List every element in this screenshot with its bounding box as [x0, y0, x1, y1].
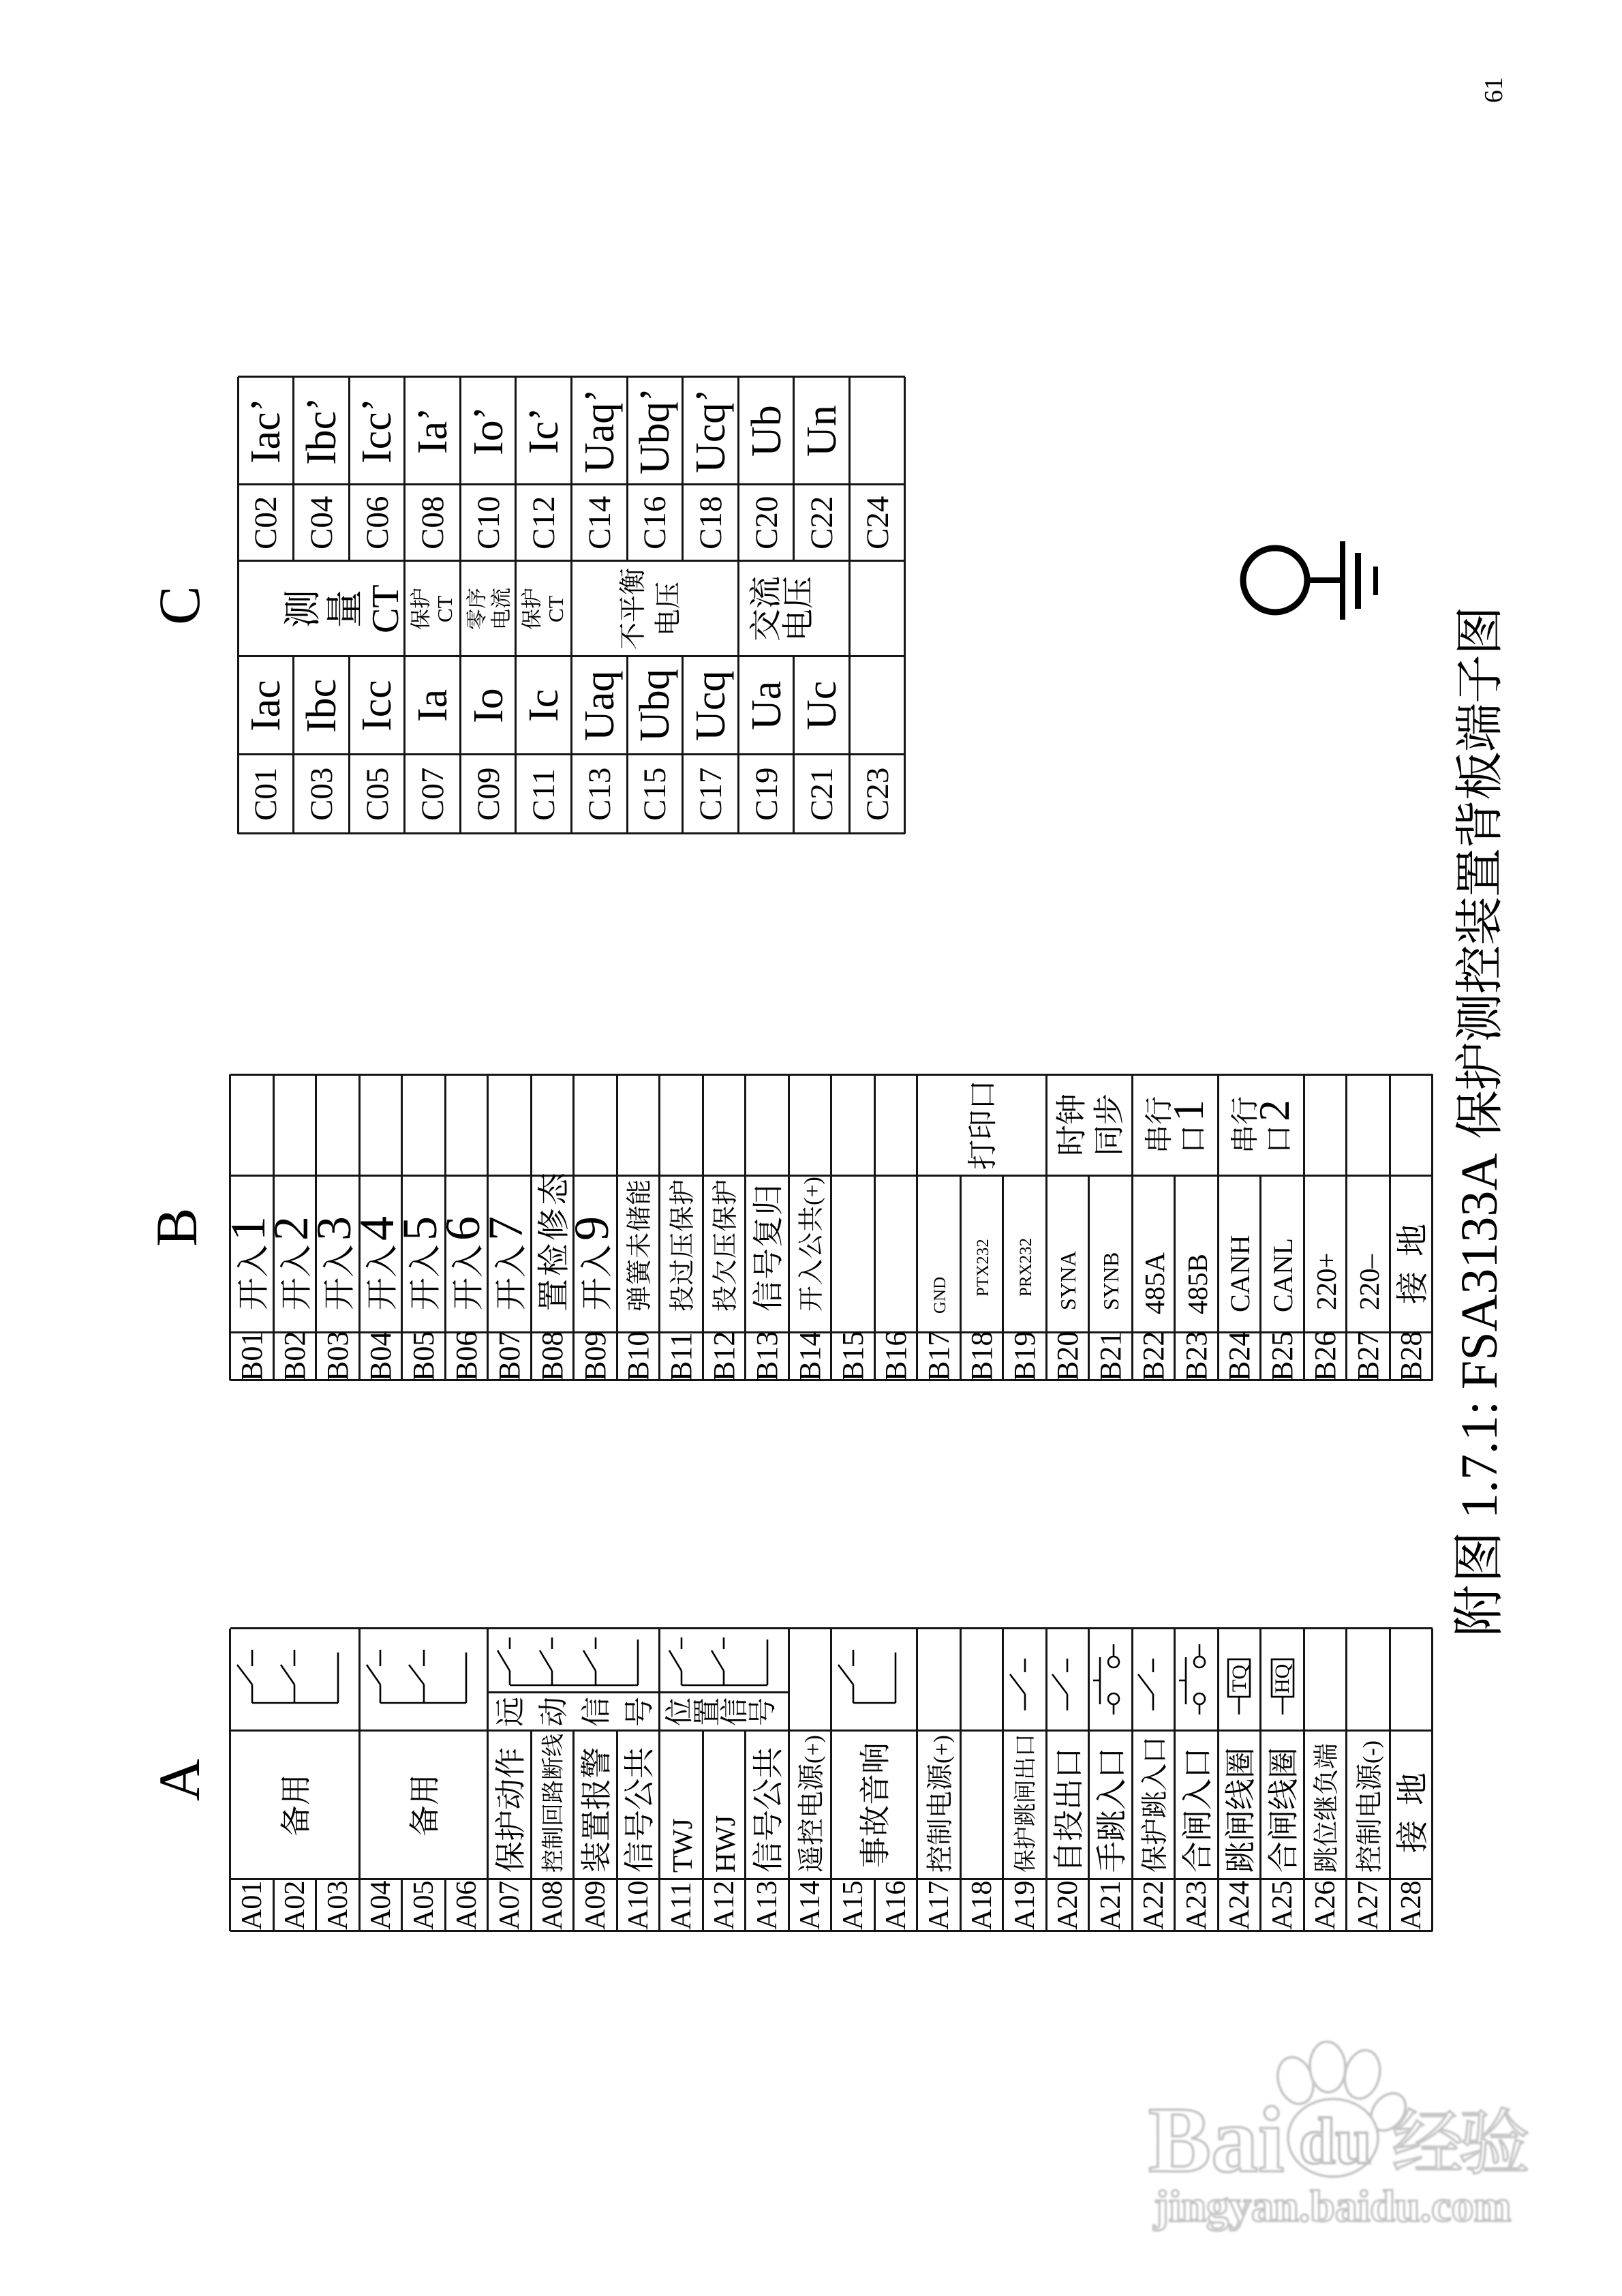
svg-text:61: 61 [1480, 77, 1508, 103]
svg-text:B03: B03 [321, 1331, 354, 1381]
svg-text:A10: A10 [623, 1881, 654, 1930]
svg-text:A28: A28 [1396, 1881, 1427, 1930]
svg-text:A25: A25 [1267, 1881, 1298, 1930]
svg-text:SYNB: SYNB [1099, 1252, 1123, 1310]
svg-text:A02: A02 [279, 1881, 311, 1930]
svg-text:B22: B22 [1137, 1331, 1170, 1381]
svg-text:Ia’: Ia’ [410, 407, 456, 454]
svg-text:C20: C20 [749, 496, 784, 549]
svg-text:Ic’: Ic’ [521, 407, 567, 454]
svg-text:A03: A03 [322, 1881, 354, 1930]
svg-text:Uc: Uc [799, 681, 845, 730]
svg-text:B04: B04 [364, 1331, 397, 1381]
svg-text:(+): (+) [801, 1735, 826, 1764]
svg-text:A16: A16 [881, 1881, 912, 1930]
svg-text:C12: C12 [526, 496, 562, 549]
svg-text:Ic: Ic [521, 689, 567, 722]
svg-text:B02: B02 [278, 1331, 311, 1381]
svg-text:Io: Io [465, 688, 512, 723]
svg-text:(+): (+) [930, 1735, 955, 1764]
svg-text:B17: B17 [922, 1331, 955, 1381]
svg-text:C24: C24 [860, 496, 896, 549]
svg-text:Ucq’: Ucq’ [688, 389, 734, 473]
svg-text:Ucq: Ucq [688, 671, 734, 741]
svg-text:HQ: HQ [1271, 1663, 1294, 1693]
svg-text:A09: A09 [580, 1881, 611, 1930]
svg-text:Un: Un [799, 405, 845, 457]
svg-text:(+): (+) [800, 1177, 825, 1205]
svg-text:B11: B11 [664, 1332, 698, 1381]
svg-text:220+: 220+ [1311, 1252, 1342, 1310]
svg-text:B06: B06 [450, 1331, 483, 1381]
svg-text:C18: C18 [693, 496, 729, 549]
svg-text:C16: C16 [637, 496, 673, 549]
svg-text:C11: C11 [526, 768, 562, 821]
svg-text:A18: A18 [966, 1881, 998, 1930]
svg-text:A17: A17 [923, 1881, 955, 1930]
svg-text:B08: B08 [536, 1331, 569, 1381]
svg-text:Uaq’: Uaq’ [577, 389, 623, 473]
svg-text:B26: B26 [1309, 1331, 1342, 1381]
svg-text:A12: A12 [709, 1881, 740, 1930]
svg-text:CT: CT [544, 595, 568, 622]
svg-text:B28: B28 [1394, 1331, 1428, 1381]
svg-text:A21: A21 [1095, 1881, 1127, 1930]
svg-text:du: du [1299, 2104, 1372, 2177]
svg-text:Iac’: Iac’ [243, 398, 289, 464]
svg-text:B21: B21 [1094, 1331, 1127, 1381]
svg-text:C04: C04 [304, 496, 339, 549]
svg-text:C10: C10 [471, 496, 506, 549]
svg-text:Iac: Iac [243, 680, 289, 731]
svg-text:C19: C19 [749, 768, 784, 821]
svg-text:C15: C15 [637, 768, 673, 821]
svg-text:PRX232: PRX232 [1017, 1238, 1035, 1297]
svg-text:TQ: TQ [1228, 1665, 1251, 1692]
svg-text:SYNA: SYNA [1056, 1251, 1080, 1310]
svg-text:485A: 485A [1139, 1252, 1170, 1315]
svg-text:B09: B09 [579, 1331, 612, 1381]
svg-text:C23: C23 [860, 768, 896, 821]
svg-text:A04: A04 [365, 1881, 397, 1930]
svg-text:C07: C07 [415, 768, 450, 821]
svg-text:A19: A19 [1009, 1881, 1041, 1930]
svg-text:B15: B15 [836, 1331, 870, 1381]
svg-text:B: B [144, 1207, 209, 1246]
svg-text:C21: C21 [804, 768, 840, 821]
svg-text:B24: B24 [1223, 1331, 1256, 1381]
svg-text:B12: B12 [707, 1331, 741, 1381]
svg-text:C22: C22 [804, 496, 840, 549]
svg-text:Uaq: Uaq [577, 671, 623, 741]
svg-text:C17: C17 [693, 768, 729, 821]
svg-text:C02: C02 [248, 496, 284, 549]
svg-text:Icc’: Icc’ [354, 398, 400, 464]
svg-text:Ubq’: Ubq’ [632, 388, 678, 474]
svg-text:C14: C14 [582, 496, 617, 549]
svg-text:B05: B05 [407, 1331, 440, 1381]
svg-text:CANH: CANH [1225, 1235, 1255, 1312]
svg-text:FSA3133A: FSA3133A [1451, 1153, 1508, 1389]
svg-text:C01: C01 [248, 768, 284, 821]
svg-text:A26: A26 [1310, 1881, 1341, 1930]
svg-text:A22: A22 [1138, 1881, 1169, 1930]
svg-text:220–: 220– [1353, 1254, 1385, 1311]
svg-text:B13: B13 [750, 1331, 784, 1381]
svg-text:C03: C03 [304, 768, 339, 821]
svg-text:A23: A23 [1181, 1881, 1212, 1930]
svg-text:A08: A08 [537, 1881, 568, 1930]
svg-text:B10: B10 [622, 1331, 655, 1381]
svg-text:B27: B27 [1351, 1331, 1385, 1381]
svg-text:A11: A11 [666, 1882, 697, 1930]
svg-text:485B: 485B [1182, 1254, 1213, 1314]
svg-text:A24: A24 [1224, 1881, 1255, 1930]
svg-text:B01: B01 [235, 1331, 269, 1381]
svg-text:CT: CT [365, 584, 407, 633]
svg-text:Ua: Ua [744, 681, 790, 730]
svg-text:B23: B23 [1180, 1331, 1213, 1381]
svg-text:9: 9 [564, 1216, 619, 1241]
svg-text:C06: C06 [360, 496, 395, 549]
svg-text:GND: GND [931, 1277, 949, 1314]
svg-text:A15: A15 [838, 1881, 869, 1930]
svg-text:B14: B14 [793, 1331, 827, 1381]
svg-text:C: C [147, 586, 212, 624]
svg-text:7: 7 [478, 1216, 533, 1241]
svg-text:HWJ: HWJ [709, 1815, 741, 1873]
svg-text:Ubq: Ubq [632, 669, 678, 742]
svg-text:2: 2 [1251, 1100, 1298, 1121]
svg-text:TWJ: TWJ [667, 1818, 698, 1873]
svg-text:A07: A07 [494, 1881, 525, 1930]
svg-text:C13: C13 [582, 768, 617, 821]
svg-text:C08: C08 [415, 496, 450, 549]
svg-text:Io’: Io’ [465, 406, 512, 455]
svg-text:A20: A20 [1052, 1881, 1084, 1930]
svg-text:(-): (-) [1359, 1740, 1384, 1764]
svg-text:C09: C09 [471, 768, 506, 821]
svg-text:B18: B18 [965, 1331, 998, 1381]
svg-text:A: A [147, 1759, 212, 1801]
svg-text:A05: A05 [408, 1881, 440, 1930]
svg-text:Ia: Ia [410, 689, 456, 722]
svg-text:PTX232: PTX232 [974, 1239, 992, 1297]
svg-text:Ibc’: Ibc’ [299, 397, 345, 465]
svg-text:B07: B07 [493, 1331, 526, 1381]
svg-text:A27: A27 [1353, 1881, 1384, 1930]
svg-text:jingyan.baidu.com: jingyan.baidu.com [1153, 2181, 1511, 2231]
svg-text:Icc: Icc [354, 680, 400, 731]
svg-text:A13: A13 [752, 1881, 783, 1930]
svg-text:A06: A06 [451, 1881, 483, 1930]
svg-text:CT: CT [433, 595, 457, 622]
svg-text:B16: B16 [879, 1331, 913, 1381]
svg-text:Ibc: Ibc [299, 679, 345, 733]
svg-text:C05: C05 [360, 768, 395, 821]
svg-text:CANL: CANL [1268, 1238, 1298, 1312]
svg-text:B25: B25 [1266, 1331, 1299, 1381]
svg-text:B19: B19 [1008, 1331, 1041, 1381]
svg-text:B20: B20 [1051, 1331, 1084, 1381]
svg-text:Ub: Ub [744, 405, 790, 457]
svg-text:A14: A14 [795, 1881, 826, 1930]
svg-text:1: 1 [1165, 1100, 1212, 1121]
svg-text:1.7.1:: 1.7.1: [1451, 1401, 1508, 1519]
svg-text:Bai: Bai [1148, 2087, 1284, 2192]
svg-text:A01: A01 [236, 1881, 268, 1930]
